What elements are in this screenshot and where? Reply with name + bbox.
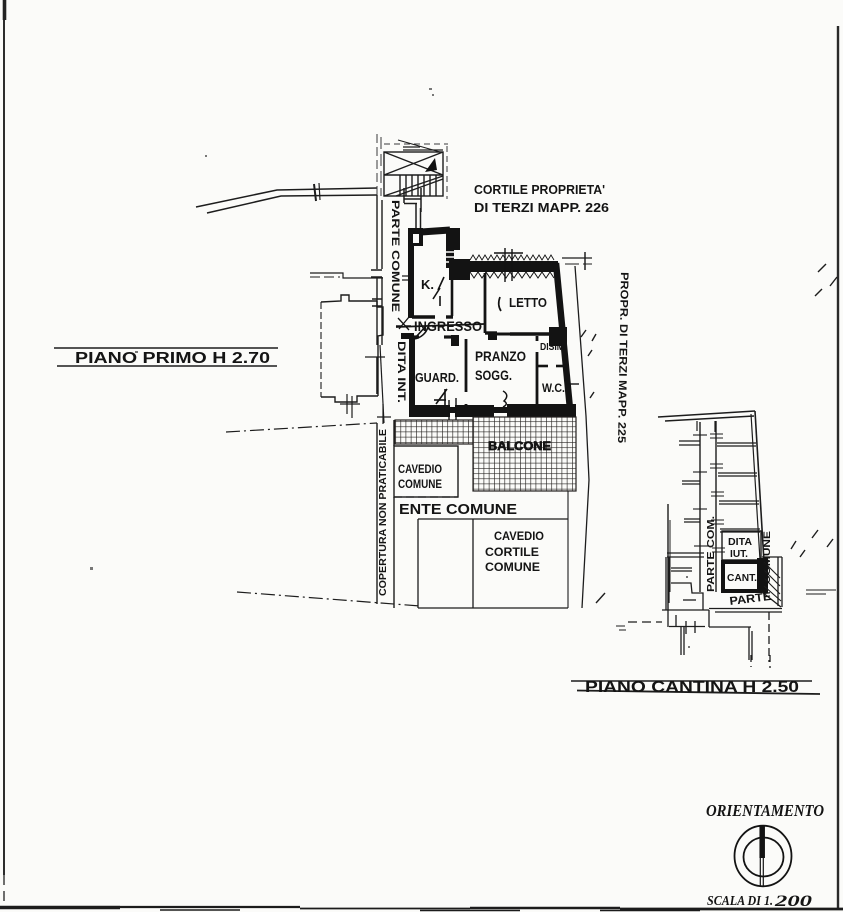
svg-text:BALCONE: BALCONE	[488, 439, 551, 453]
svg-text:SCALA DI 1.: SCALA DI 1.	[707, 894, 773, 909]
svg-text:PARTE: PARTE	[729, 591, 773, 608]
svg-text:PROPR. DI TERZI MAPP. 225: PROPR. DI TERZI MAPP. 225	[615, 272, 630, 443]
svg-text:W.C.: W.C.	[542, 381, 565, 395]
svg-text:CANT.: CANT.	[727, 573, 757, 584]
svg-text:GUARD.: GUARD.	[415, 370, 459, 385]
svg-text:PARTE COM.: PARTE COM.	[706, 516, 717, 592]
svg-text:PRANZO: PRANZO	[475, 348, 526, 364]
svg-text:IUT.: IUT.	[730, 549, 748, 560]
svg-text:SOGG.: SOGG.	[475, 367, 512, 383]
svg-text:DI TERZI MAPP. 226: DI TERZI MAPP. 226	[474, 201, 609, 215]
svg-text:PIANO CANTINA H 2.50: PIANO CANTINA H 2.50	[585, 679, 799, 696]
svg-text:CAVEDIO: CAVEDIO	[494, 529, 544, 543]
svg-text:COMUNE: COMUNE	[398, 477, 442, 491]
svg-text:ENTE COMUNE: ENTE COMUNE	[399, 502, 517, 518]
svg-text:DISIM: DISIM	[540, 341, 564, 353]
svg-text:DITA INT.: DITA INT.	[395, 341, 407, 403]
svg-text:LETTO: LETTO	[509, 295, 547, 310]
svg-text:COMUNE: COMUNE	[485, 560, 540, 574]
svg-text:200: 200	[773, 893, 812, 910]
svg-text:K.: K.	[421, 277, 434, 292]
svg-text:ORIENTAMENTO: ORIENTAMENTO	[706, 801, 824, 820]
svg-text:PIANO PRIMO H 2.70: PIANO PRIMO H 2.70	[75, 350, 270, 367]
svg-text:CORTILE: CORTILE	[485, 545, 539, 559]
svg-text:CAVEDIO: CAVEDIO	[398, 462, 442, 476]
svg-text:DITA: DITA	[728, 537, 752, 548]
svg-text:CORTILE PROPRIETA': CORTILE PROPRIETA'	[474, 183, 605, 197]
svg-text:PARTE COMUNE: PARTE COMUNE	[389, 200, 401, 312]
svg-text:COPERTURA NON PRATICABILE: COPERTURA NON PRATICABILE	[378, 429, 389, 596]
svg-text:COMUNE: COMUNE	[762, 531, 772, 584]
